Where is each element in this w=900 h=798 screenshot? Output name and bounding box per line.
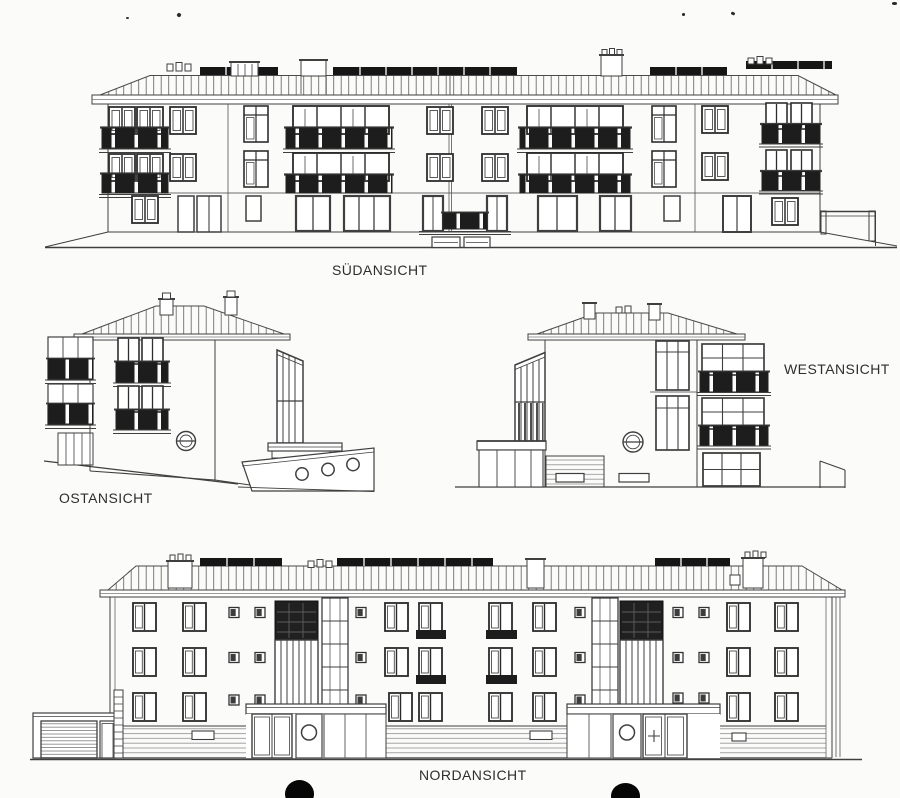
west-retaining-wall xyxy=(820,461,845,488)
north-entrance-1 xyxy=(246,598,386,758)
east-stair-glazing xyxy=(277,350,303,443)
ink-speck xyxy=(892,2,897,5)
south-stairwell-left xyxy=(244,106,268,221)
west-gable-windows xyxy=(650,341,697,450)
east-facade xyxy=(44,337,374,492)
wall-ladder xyxy=(114,690,123,758)
ink-speck xyxy=(682,13,685,16)
south-roof-solar-panels xyxy=(200,61,832,75)
garage-door xyxy=(41,721,97,758)
label-south-elevation: SÜDANSICHT xyxy=(332,262,428,278)
north-windows xyxy=(133,603,798,721)
north-facade xyxy=(30,597,862,760)
south-bay-balcony-b xyxy=(283,106,395,231)
west-roof xyxy=(528,303,745,340)
west-pergola xyxy=(477,441,546,487)
north-roof-solar-panels xyxy=(200,558,730,566)
west-stair-glazing xyxy=(515,353,545,449)
label-east-elevation: OSTANSICHT xyxy=(59,490,153,506)
east-porthole-window xyxy=(177,432,196,451)
elevation-drawing-canvas xyxy=(0,0,900,798)
ink-speck xyxy=(126,17,129,19)
south-elevation-drawing xyxy=(45,49,897,248)
south-bay-balcony-c xyxy=(517,106,633,231)
south-bay-right-balcony xyxy=(702,103,823,232)
south-roof xyxy=(92,49,838,105)
scanned-elevation-sheet: SÜDANSICHT OSTANSICHT WESTANSICHT NORDAN… xyxy=(0,0,900,798)
east-roof xyxy=(74,291,290,340)
north-roof xyxy=(100,551,845,597)
west-elevation-drawing xyxy=(455,303,845,488)
north-entrance-2 xyxy=(567,598,720,758)
east-gable-windows xyxy=(113,338,171,434)
north-elevation-drawing xyxy=(30,551,862,760)
south-facade xyxy=(45,103,897,248)
west-right-balconies xyxy=(697,344,771,486)
label-north-elevation: NORDANSICHT xyxy=(419,767,527,783)
south-bay-left-balcony xyxy=(99,107,221,232)
west-porthole-window xyxy=(623,432,643,452)
east-retaining-wall xyxy=(238,448,374,492)
east-left-balconies xyxy=(45,337,96,465)
south-center-loggia xyxy=(419,107,511,248)
east-elevation-drawing xyxy=(44,291,374,492)
label-west-elevation: WESTANSICHT xyxy=(784,361,890,377)
south-stairwell-right xyxy=(652,106,680,221)
